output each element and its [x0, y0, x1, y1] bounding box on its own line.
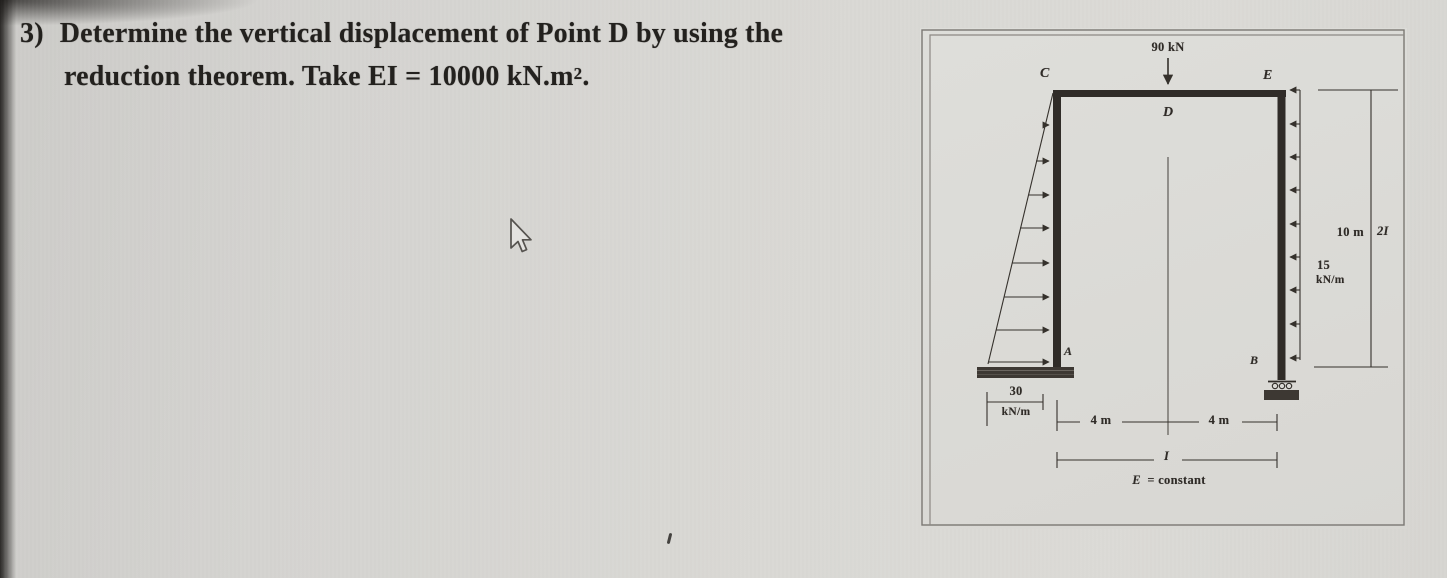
triangular-load-left [988, 93, 1053, 364]
problem-statement: 3) Determine the vertical displacement o… [20, 14, 850, 97]
problem-line-2-end: . [582, 61, 589, 92]
label-span-right: 4 m [1197, 413, 1241, 428]
problem-line-2: reduction theorem. Take EI = 10000 kN.m2… [20, 54, 850, 97]
label-node-c: C [1040, 66, 1050, 82]
roller-support-B [1264, 382, 1299, 401]
label-node-e: E [1263, 68, 1273, 84]
note-e-symbol: E [1132, 473, 1141, 487]
frame-members [1053, 90, 1286, 380]
label-right-load-unit: kN/m [1316, 274, 1345, 286]
photo-left-shadow [0, 0, 16, 578]
problem-line-2-text: reduction theorem. Take EI = 10000 kN.m [64, 61, 574, 92]
label-beam-inertia: I [1164, 449, 1169, 464]
uniform-load-right [1290, 90, 1300, 360]
problem-line-1: 3) Determine the vertical displacement o… [20, 14, 850, 54]
mouse-cursor-icon [502, 215, 536, 259]
problem-number: 3) [20, 14, 44, 54]
label-right-column-inertia: 2I [1377, 224, 1389, 239]
label-height: 10 m [1318, 225, 1364, 240]
label-material-note: E = constant [1098, 473, 1240, 488]
label-left-load-value: 30 [1000, 384, 1032, 399]
label-span-left: 4 m [1079, 413, 1123, 428]
label-node-a: A [1064, 344, 1072, 359]
label-node-b: B [1250, 353, 1258, 368]
note-text: = constant [1147, 473, 1205, 487]
dust-mark [667, 533, 673, 544]
label-node-d: D [1163, 105, 1173, 121]
label-left-load-unit: kN/m [990, 406, 1042, 418]
fixed-support-A [977, 367, 1074, 378]
label-point-load: 90 kN [1134, 40, 1202, 55]
figure-box: 90 kN C E D A B 10 m 2I 15 kN/m 30 kN/m … [920, 28, 1407, 529]
label-right-load-value: 15 [1317, 258, 1330, 273]
problem-line-1-text: Determine the vertical displacement of P… [60, 14, 783, 54]
